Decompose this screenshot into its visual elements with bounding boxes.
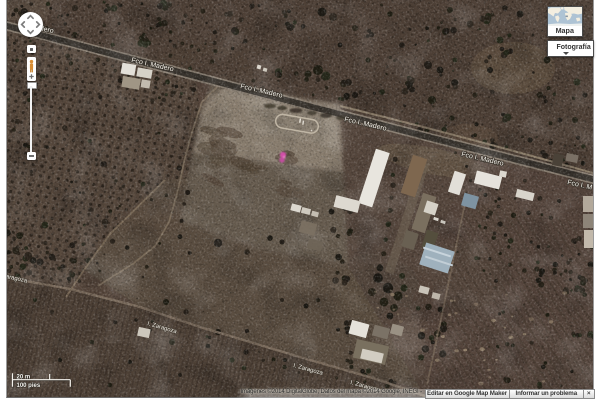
svg-text:20 m: 20 m — [17, 374, 31, 380]
svg-text:100 pies: 100 pies — [17, 383, 41, 389]
